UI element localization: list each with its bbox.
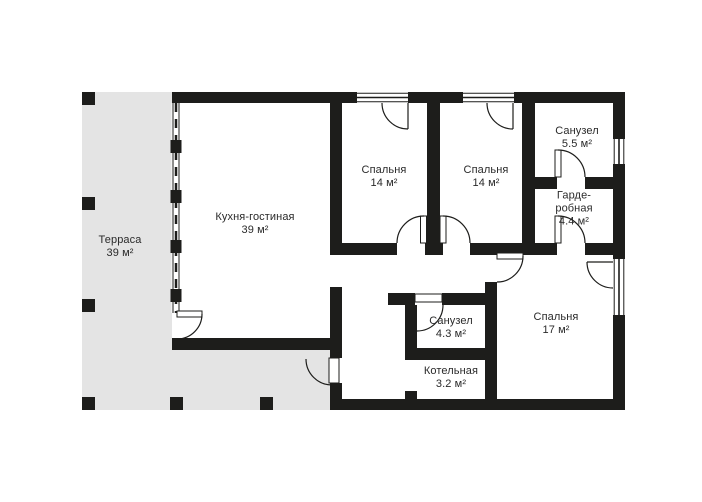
room-area: 5.5 м² xyxy=(555,138,599,151)
room-label-boiler-room: Котельная 3.2 м² xyxy=(424,365,478,391)
room-area: 17 м² xyxy=(534,324,579,337)
door-kitchen-terrace xyxy=(177,311,202,339)
terrace-post xyxy=(82,397,95,410)
door-bedroom-2 xyxy=(440,216,470,243)
room-name: Гарде- xyxy=(555,190,592,203)
casement-window-bedroom-2 xyxy=(487,103,513,129)
room-name: Спальня xyxy=(464,164,509,177)
terrace-post xyxy=(82,299,95,312)
window-bedroom-3 xyxy=(613,259,625,315)
terrace-post xyxy=(260,397,273,410)
room-label-bathroom-1: Санузел 5.5 м² xyxy=(555,125,599,151)
terrace-post xyxy=(82,197,95,210)
room-label-bedroom-3: Спальня 17 м² xyxy=(534,311,579,337)
room-label-bathroom-2: Санузел 4.3 м² xyxy=(429,315,473,341)
room-area: 3.2 м² xyxy=(424,378,478,391)
room-label-wardrobe: Гарде- робная 4.4 м² xyxy=(555,190,592,229)
casement-window-bedroom-3 xyxy=(587,262,613,288)
room-area: 4.3 м² xyxy=(429,328,473,341)
room-area: 14 м² xyxy=(362,177,407,190)
room-name: Терраса xyxy=(99,234,142,247)
room-area: 39 м² xyxy=(215,224,294,237)
room-area: 4.4 м² xyxy=(555,215,592,228)
floor-plan-page: Терраса 39 м² Кухня-гостиная 39 м² Спаль… xyxy=(0,0,702,502)
door-bathroom-1 xyxy=(555,150,585,177)
terrace-post xyxy=(82,92,95,105)
terrace-post xyxy=(170,397,183,410)
room-label-kitchen-living: Кухня-гостиная 39 м² xyxy=(215,211,294,237)
door-bedroom-1 xyxy=(397,216,427,243)
window-bedroom-1 xyxy=(357,92,408,103)
door-bedroom-3 xyxy=(497,253,523,282)
room-label-bedroom-1: Спальня 14 м² xyxy=(362,164,407,190)
room-name: Кухня-гостиная xyxy=(215,211,294,224)
glazed-wall-kitchen-terrace xyxy=(171,103,182,313)
room-name: Санузел xyxy=(429,315,473,328)
window-bathroom-1 xyxy=(613,139,625,164)
casement-window-bedroom-1 xyxy=(382,103,408,129)
room-name: Котельная xyxy=(424,365,478,378)
room-area: 14 м² xyxy=(464,177,509,190)
room-name: Санузел xyxy=(555,125,599,138)
window-bedroom-2 xyxy=(463,92,514,103)
room-name: Спальня xyxy=(362,164,407,177)
room-name: робная xyxy=(555,203,592,216)
room-name: Спальня xyxy=(534,311,579,324)
room-label-bedroom-2: Спальня 14 м² xyxy=(464,164,509,190)
room-area: 39 м² xyxy=(99,247,142,260)
room-label-terrace: Терраса 39 м² xyxy=(99,234,142,260)
